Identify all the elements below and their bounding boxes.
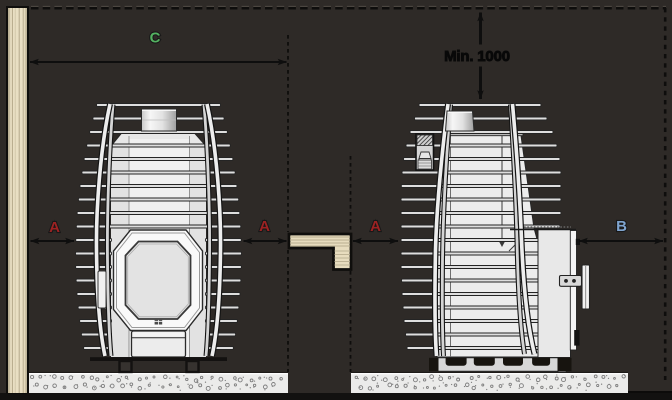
svg-text:C: C bbox=[150, 30, 161, 47]
svg-text:B: B bbox=[616, 218, 627, 235]
svg-text:Min. 1000: Min. 1000 bbox=[444, 48, 510, 65]
svg-text:A: A bbox=[370, 218, 381, 235]
svg-text:A: A bbox=[49, 219, 60, 236]
svg-text:A: A bbox=[259, 218, 270, 235]
